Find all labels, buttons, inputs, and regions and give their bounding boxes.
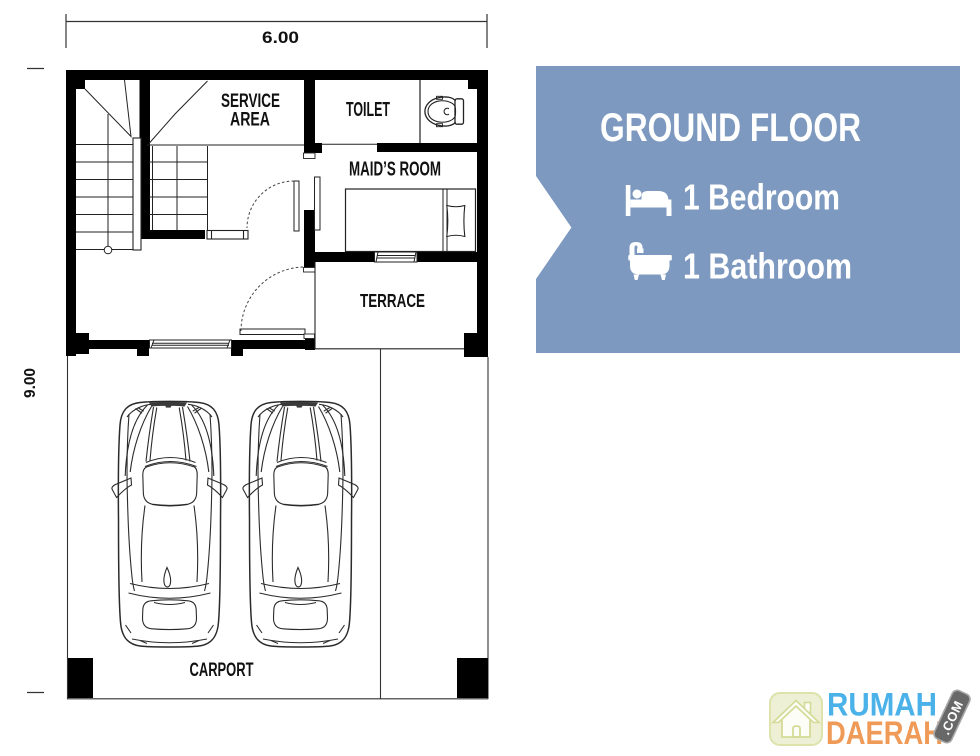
svg-text:MAID’S ROOM: MAID’S ROOM: [349, 158, 441, 181]
svg-text:DAERAH: DAERAH: [826, 715, 943, 751]
svg-text:1 Bathroom: 1 Bathroom: [683, 246, 852, 287]
svg-text:TOILET: TOILET: [346, 98, 390, 121]
svg-text:AREA: AREA: [230, 109, 270, 131]
svg-text:GROUND FLOOR: GROUND FLOOR: [600, 106, 861, 150]
svg-text:CARPORT: CARPORT: [190, 659, 254, 681]
svg-text:TERRACE: TERRACE: [360, 290, 425, 311]
svg-text:9.00: 9.00: [22, 368, 39, 398]
svg-text:6.00: 6.00: [262, 28, 299, 47]
svg-text:1 Bedroom: 1 Bedroom: [683, 177, 840, 218]
